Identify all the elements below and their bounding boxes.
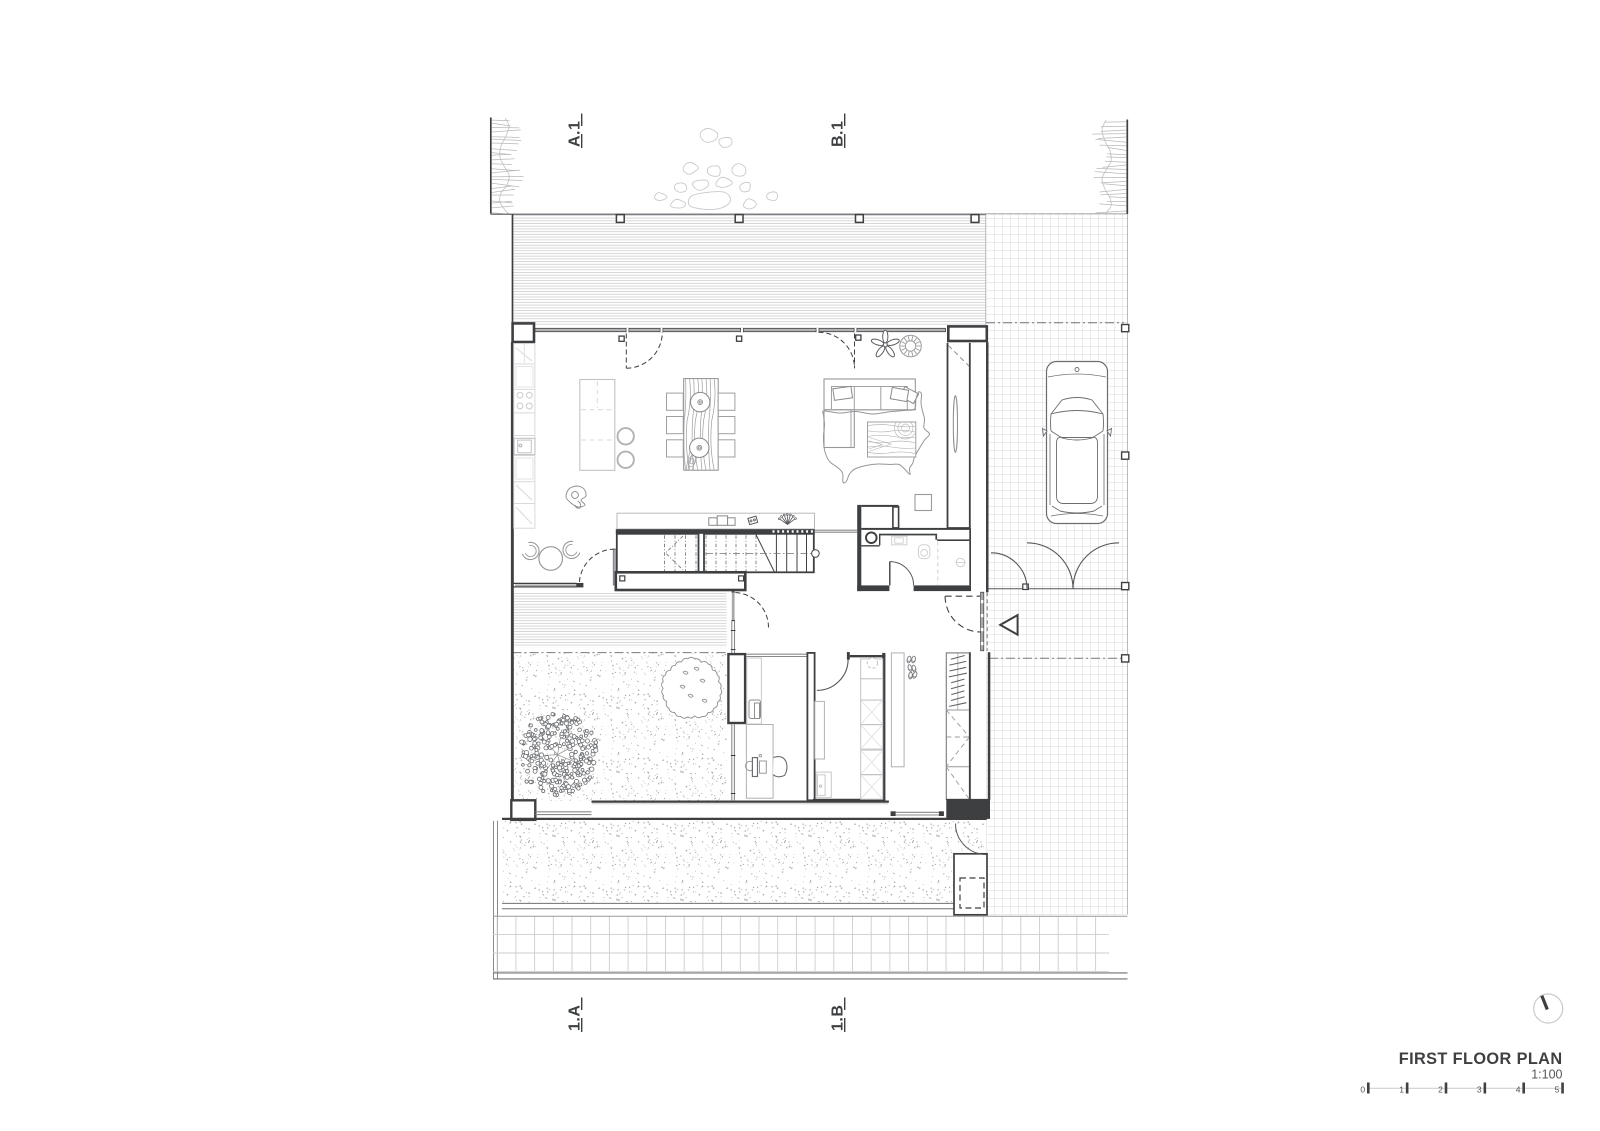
svg-text:1: 1 — [1399, 1085, 1404, 1095]
svg-text:1:100: 1:100 — [1531, 1068, 1562, 1082]
svg-text:2: 2 — [1438, 1085, 1443, 1095]
svg-text:3: 3 — [1477, 1085, 1482, 1095]
svg-text:0: 0 — [1360, 1085, 1365, 1095]
svg-text:B.1: B.1 — [830, 121, 847, 147]
svg-text:A.1: A.1 — [567, 121, 584, 147]
svg-text:1.A: 1.A — [567, 1005, 584, 1031]
svg-text:FIRST FLOOR PLAN: FIRST FLOOR PLAN — [1399, 1050, 1563, 1068]
svg-text:5: 5 — [1555, 1085, 1560, 1095]
svg-text:1.B: 1.B — [830, 1005, 847, 1031]
svg-text:4: 4 — [1516, 1085, 1521, 1095]
